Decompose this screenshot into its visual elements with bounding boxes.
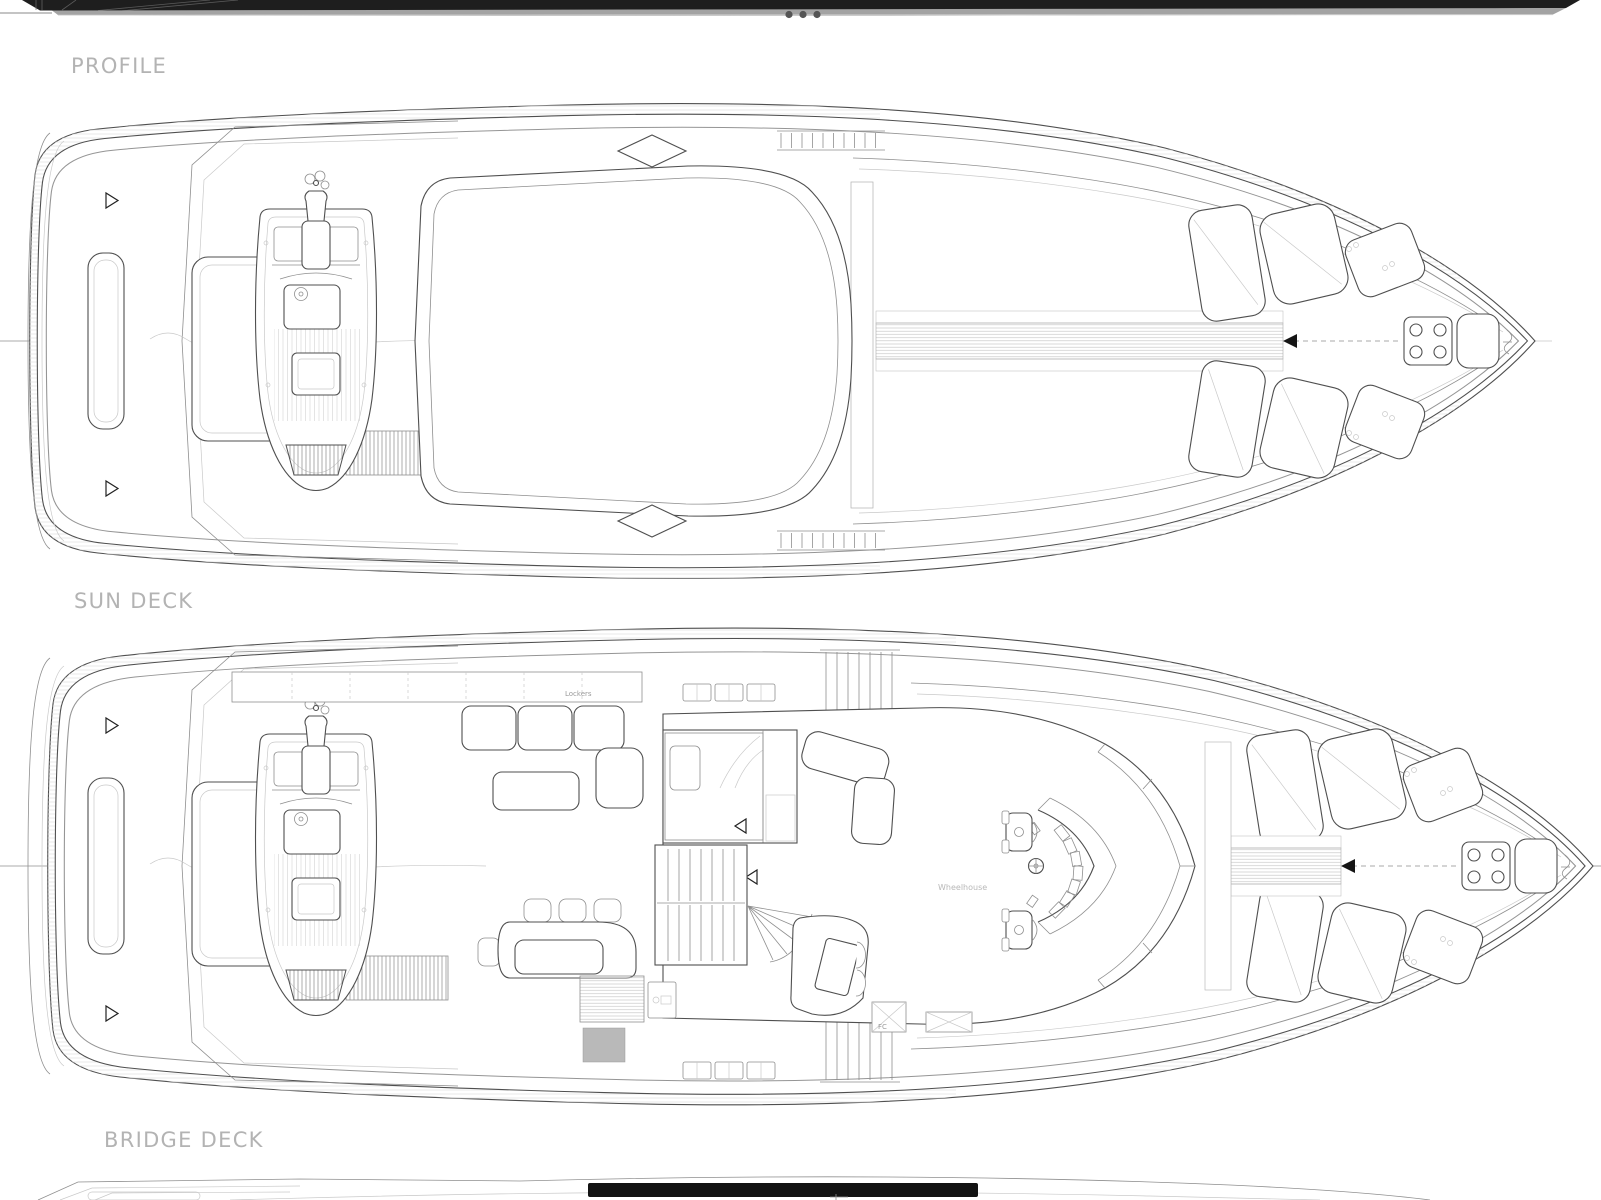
profile-deck-label: PROFILE [71,54,167,78]
sun-deck-label: SUN DECK [74,589,193,613]
dining-chair [478,938,500,966]
dining-table [515,940,603,974]
profile-hull-strip [0,0,1580,18]
grill-unit [648,982,676,1018]
dining-chair [559,899,586,922]
bed-cabin [663,730,797,843]
lockers-cabinet: Lockers [232,672,642,702]
hatch-shaded [583,1028,625,1062]
pillow [670,746,700,790]
dining-chair [594,899,621,922]
crossed-hatch-box [926,1012,972,1032]
lockers-annotation: Lockers [565,690,592,698]
drawing-canvas: Lockers [0,0,1601,1200]
center-walkway [1231,848,1341,884]
wheelhouse-annotation: Wheelhouse [938,883,987,892]
cross-walkway [851,182,873,508]
center-walkway [876,323,1283,359]
bridge-deck-drawing: Lockers [0,628,1601,1106]
coffee-table [493,772,579,810]
dining-chair [524,899,551,922]
cross-walkway [1205,742,1231,990]
bridge-deck-label: BRIDGE DECK [104,1128,264,1152]
chart-settee [791,916,868,1016]
helm-chair [1002,909,1037,951]
porthole-dots [785,11,820,18]
sun-deck-drawing [0,100,1552,582]
general-arrangement-page: PROFILE SUN DECK BRIDGE DECK [0,0,1601,1200]
lower-deck-drawing-partial [38,1177,1430,1200]
hardtop-black-bar [588,1183,978,1197]
fire-control-box: FC [872,1002,906,1032]
helm-chair [1002,811,1037,853]
sun-deck-hardtop-roof [415,166,852,516]
fc-annotation: FC [878,1023,887,1031]
